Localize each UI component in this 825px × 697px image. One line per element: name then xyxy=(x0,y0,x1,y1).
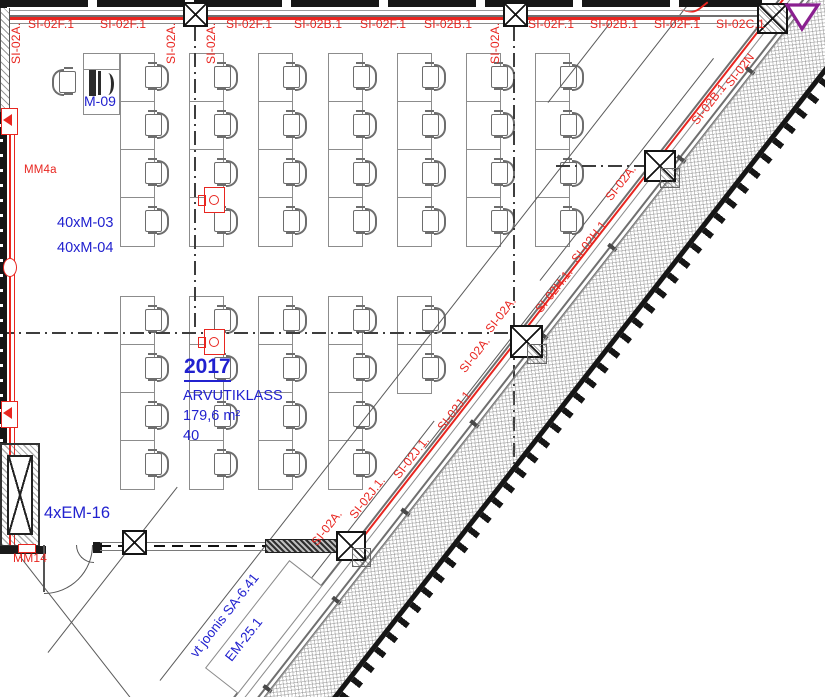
cable-label: SI-02A. xyxy=(204,23,218,64)
junction-box-hatch xyxy=(660,168,680,188)
chair xyxy=(283,453,300,475)
chair xyxy=(491,210,508,232)
chair xyxy=(353,405,370,427)
chair xyxy=(353,309,370,331)
chair xyxy=(214,66,231,88)
junction-box xyxy=(122,530,147,555)
grid-line xyxy=(194,27,196,336)
m09-label: M-09 xyxy=(84,93,116,109)
chair xyxy=(422,114,439,136)
chair xyxy=(145,309,162,331)
speaker-icon xyxy=(1,108,18,135)
chair xyxy=(214,210,231,232)
chair xyxy=(145,357,162,379)
chair xyxy=(353,453,370,475)
chair xyxy=(353,210,370,232)
cable-label: SI-02F.1 xyxy=(226,17,272,31)
chair xyxy=(283,357,300,379)
chair xyxy=(145,453,162,475)
door-jamb xyxy=(93,542,102,553)
outlet-symbol xyxy=(204,329,225,355)
chair xyxy=(283,309,300,331)
chair xyxy=(214,309,231,331)
chair xyxy=(422,162,439,184)
cable-label: SI-02A. xyxy=(9,23,23,64)
mm14-label: MM14 xyxy=(13,551,47,565)
chair xyxy=(145,66,162,88)
window-sill xyxy=(265,539,340,553)
cable-label: SI-02F.1 xyxy=(28,17,74,31)
cable-label: SI-02A. xyxy=(164,23,178,64)
shaft-duct xyxy=(7,455,33,535)
cable-label: SI-02C.1 xyxy=(716,17,765,31)
desk-group-label-2: 40xM-04 xyxy=(57,240,113,256)
chair xyxy=(422,210,439,232)
chair xyxy=(145,114,162,136)
chair xyxy=(560,210,577,232)
teacher-chair xyxy=(59,71,76,93)
chair xyxy=(145,162,162,184)
cable-marker xyxy=(3,258,17,277)
room-capacity: 40 xyxy=(183,428,199,444)
cable-label: SI-02F.1 xyxy=(100,17,146,31)
chair xyxy=(491,114,508,136)
chair xyxy=(422,309,439,331)
floor-plan: vt joonis SA-6.41 EM-25.1 SI-02F.1SI-02F… xyxy=(0,0,825,697)
cable-label: SI-02B.1 xyxy=(424,17,472,31)
chair xyxy=(353,162,370,184)
top-wall xyxy=(0,0,762,7)
chair xyxy=(353,357,370,379)
grid-line xyxy=(0,332,517,334)
chair xyxy=(353,66,370,88)
room-name: ARVUTIKLASS xyxy=(183,388,283,404)
chair xyxy=(422,357,439,379)
chair xyxy=(283,405,300,427)
marker-triangle-icon xyxy=(784,2,822,32)
outlet-symbol xyxy=(204,187,225,213)
chair xyxy=(214,162,231,184)
chair xyxy=(145,405,162,427)
chair xyxy=(145,210,162,232)
room-number: 2017 xyxy=(184,355,231,382)
junction-box-hatch xyxy=(527,344,547,364)
cable-label: SI-02B.1 xyxy=(590,17,638,31)
desk-group-label-1: 40xM-03 xyxy=(57,215,113,231)
chair xyxy=(214,453,231,475)
junction-box xyxy=(503,2,528,27)
chair xyxy=(283,162,300,184)
chair xyxy=(283,114,300,136)
chair xyxy=(422,66,439,88)
chair xyxy=(214,114,231,136)
chair xyxy=(560,114,577,136)
speaker-icon xyxy=(1,401,18,428)
speaker-arc-icon xyxy=(102,73,114,95)
cable-label: SI-02F.1 xyxy=(654,17,700,31)
cable-label: SI-02B.1 xyxy=(294,17,342,31)
chair xyxy=(353,114,370,136)
cable-label: SI-02F.1 xyxy=(360,17,406,31)
chair xyxy=(491,66,508,88)
mm4a-label: MM4a xyxy=(24,164,57,176)
chair xyxy=(283,210,300,232)
chair xyxy=(491,162,508,184)
junction-box-hatch xyxy=(352,548,371,567)
pc-icon xyxy=(98,71,101,95)
em16-label: 4xEM-16 xyxy=(44,504,110,523)
room-area: 179,6 m² xyxy=(183,408,240,424)
cable-label: SI-02F.1 xyxy=(528,17,574,31)
cable-label: SI-02A. xyxy=(488,23,502,64)
chair xyxy=(283,66,300,88)
